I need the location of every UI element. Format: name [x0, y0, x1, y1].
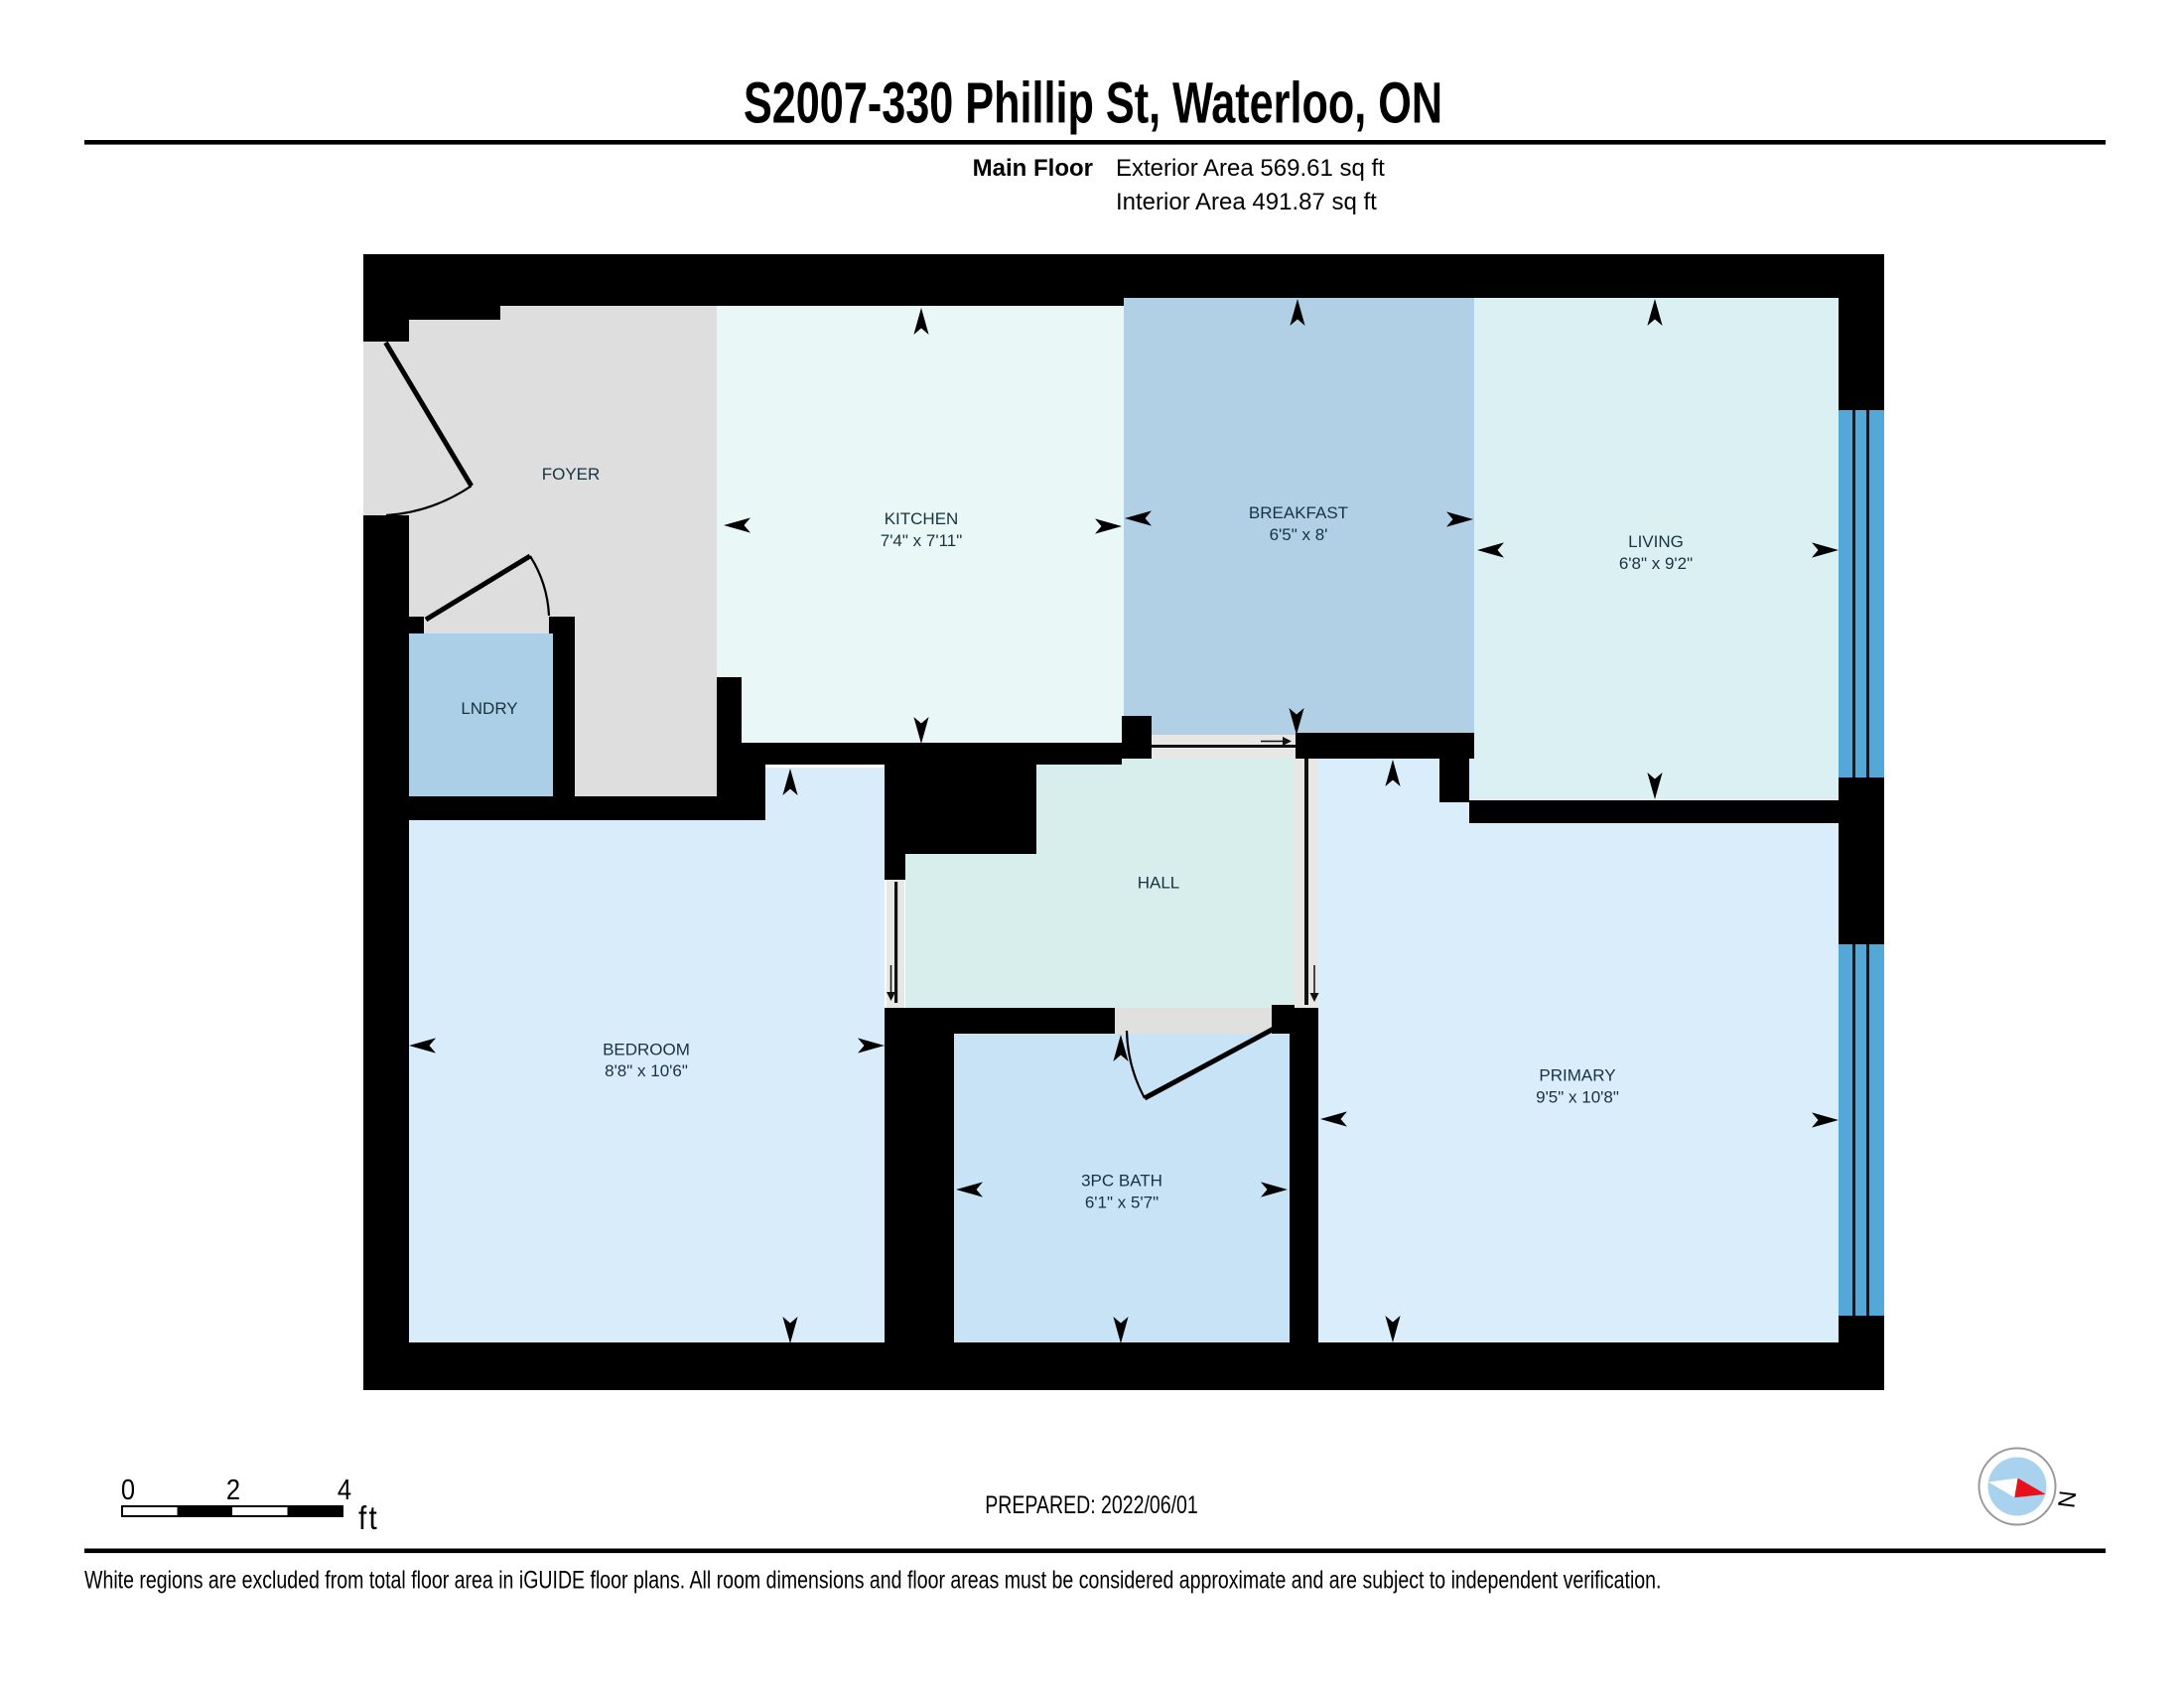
svg-text:S2007-330 Phillip St, Waterloo: S2007-330 Phillip St, Waterloo, ON: [744, 70, 1442, 135]
svg-text:LIVING: LIVING: [1628, 532, 1684, 551]
svg-text:4: 4: [338, 1473, 351, 1505]
svg-text:LNDRY: LNDRY: [461, 699, 517, 718]
svg-text:PREPARED: 2022/06/01: PREPARED: 2022/06/01: [985, 1491, 1197, 1519]
svg-text:BEDROOM: BEDROOM: [603, 1041, 690, 1059]
svg-text:Main Floor: Main Floor: [973, 155, 1093, 182]
svg-text:Interior Area 491.87 sq ft: Interior Area 491.87 sq ft: [1116, 189, 1377, 215]
svg-text:2: 2: [226, 1473, 240, 1505]
svg-text:KITCHEN: KITCHEN: [885, 509, 959, 528]
svg-text:PRIMARY: PRIMARY: [1539, 1066, 1615, 1085]
svg-text:6'5" x 8': 6'5" x 8': [1270, 525, 1328, 544]
svg-text:BREAKFAST: BREAKFAST: [1249, 503, 1348, 522]
svg-text:FOYER: FOYER: [542, 465, 601, 484]
svg-text:ft: ft: [358, 1500, 379, 1537]
svg-text:6'1" x 5'7": 6'1" x 5'7": [1085, 1193, 1159, 1211]
svg-text:3PC BATH: 3PC BATH: [1081, 1172, 1162, 1191]
svg-text:8'8" x 10'6": 8'8" x 10'6": [605, 1061, 688, 1080]
svg-text:0: 0: [121, 1473, 135, 1505]
svg-text:N: N: [2052, 1489, 2081, 1510]
svg-text:7'4" x 7'11": 7'4" x 7'11": [881, 531, 963, 550]
svg-text:6'8" x 9'2": 6'8" x 9'2": [1619, 554, 1693, 573]
svg-text:White regions are excluded fro: White regions are excluded from total fl…: [84, 1566, 1661, 1594]
svg-text:9'5" x 10'8": 9'5" x 10'8": [1536, 1087, 1619, 1106]
svg-text:Exterior Area 569.61 sq ft: Exterior Area 569.61 sq ft: [1116, 155, 1385, 182]
svg-text:HALL: HALL: [1138, 874, 1180, 893]
